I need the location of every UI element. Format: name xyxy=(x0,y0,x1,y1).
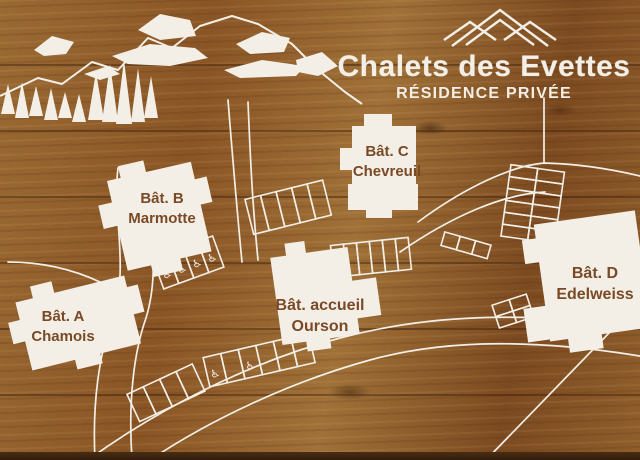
snow-patch xyxy=(236,32,290,54)
sign-bottom-edge xyxy=(0,452,640,460)
snow-patch xyxy=(224,60,305,78)
parking-space xyxy=(176,364,205,399)
building-d-edelweiss: Bât. D Edelweiss xyxy=(512,210,640,358)
building-b-sublabel: Marmotte xyxy=(128,210,196,227)
pine-tree-icon xyxy=(29,86,43,116)
accessible-parking-icon: ♿ xyxy=(244,358,257,373)
road-line xyxy=(418,163,640,222)
road-line xyxy=(228,100,242,262)
wooden-sign-board: ♿ ♿ ♿ ♿ ♿ ♿ xyxy=(0,0,640,460)
accessible-parking-icon: ♿ xyxy=(209,366,222,381)
building-c-shape xyxy=(366,208,392,218)
sign-subtitle: RÉSIDENCE PRIVÉE xyxy=(330,86,638,102)
sign-title: Chalets des Evettes xyxy=(330,52,638,82)
parking-row-mid xyxy=(441,232,491,259)
building-c-sublabel: Chevreuil xyxy=(353,163,421,180)
building-accueil-sublabel: Ourson xyxy=(292,318,349,335)
pine-tree-icon xyxy=(72,94,86,122)
building-c-chevreuil: Bât. C Chevreuil xyxy=(340,114,421,218)
building-d-label: Bât. D xyxy=(572,265,618,282)
snow-patch xyxy=(112,44,208,66)
mountain-logo-icon xyxy=(444,10,556,46)
pine-trees xyxy=(1,60,158,124)
building-c-shape xyxy=(364,114,392,128)
pine-tree-icon xyxy=(144,76,158,118)
building-accueil-shape xyxy=(284,241,306,258)
snow-patch xyxy=(34,36,74,56)
road-line xyxy=(150,344,640,460)
building-d-shape xyxy=(523,305,553,342)
parking-space xyxy=(395,237,411,270)
pine-tree-icon xyxy=(44,88,58,120)
building-d-sublabel: Edelweiss xyxy=(556,286,633,303)
accessible-parking-icon: ♿ xyxy=(190,256,204,272)
pine-tree-icon xyxy=(58,92,72,118)
parking-space xyxy=(307,180,331,219)
accessible-parking-icon: ♿ xyxy=(205,250,219,266)
snow-patch xyxy=(138,14,196,40)
road-line xyxy=(248,102,258,260)
building-accueil-ourson: Bât. accueil Ourson xyxy=(269,232,385,355)
building-c-shape xyxy=(348,184,418,210)
parking-row-lower-left xyxy=(127,364,205,422)
pine-tree-icon xyxy=(1,84,15,114)
building-a-label: Bât. A xyxy=(42,308,85,325)
building-d-shape xyxy=(522,238,541,264)
building-a-sublabel: Chamois xyxy=(31,328,94,345)
pine-tree-icon xyxy=(131,68,145,122)
building-a-chamois: Bât. A Chamois xyxy=(1,261,154,383)
building-accueil-label: Bât. accueil xyxy=(276,297,365,314)
building-c-label: Bât. C xyxy=(365,143,409,160)
road-line xyxy=(486,332,610,460)
logo-peak-inner xyxy=(466,20,534,45)
building-b-label: Bât. B xyxy=(140,190,184,207)
parking-space xyxy=(501,224,529,240)
logo-peak-right xyxy=(504,22,556,40)
parking-fan-center xyxy=(245,180,331,234)
logo-peak-large xyxy=(452,10,548,46)
parking-space xyxy=(472,241,491,259)
road-line xyxy=(8,262,100,282)
